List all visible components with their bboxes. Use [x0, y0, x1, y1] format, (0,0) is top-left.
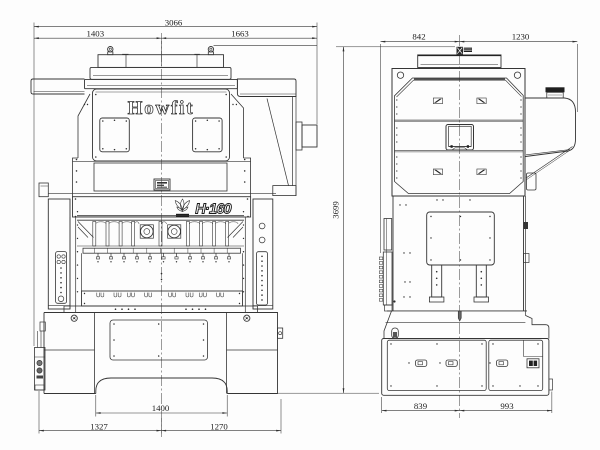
svg-text:993: 993 — [500, 401, 514, 411]
svg-text:1270: 1270 — [210, 421, 228, 431]
svg-text:1663: 1663 — [231, 28, 249, 38]
svg-text:839: 839 — [414, 401, 428, 411]
svg-text:1403: 1403 — [87, 28, 105, 38]
svg-text:Howfit: Howfit — [128, 98, 195, 119]
svg-text:1327: 1327 — [90, 421, 108, 431]
svg-text:1400: 1400 — [152, 403, 170, 413]
svg-text:3066: 3066 — [165, 17, 183, 27]
svg-text:H·160: H·160 — [195, 202, 231, 218]
svg-text:842: 842 — [412, 31, 425, 41]
svg-text:1230: 1230 — [512, 31, 530, 41]
svg-text:3699: 3699 — [331, 201, 341, 219]
